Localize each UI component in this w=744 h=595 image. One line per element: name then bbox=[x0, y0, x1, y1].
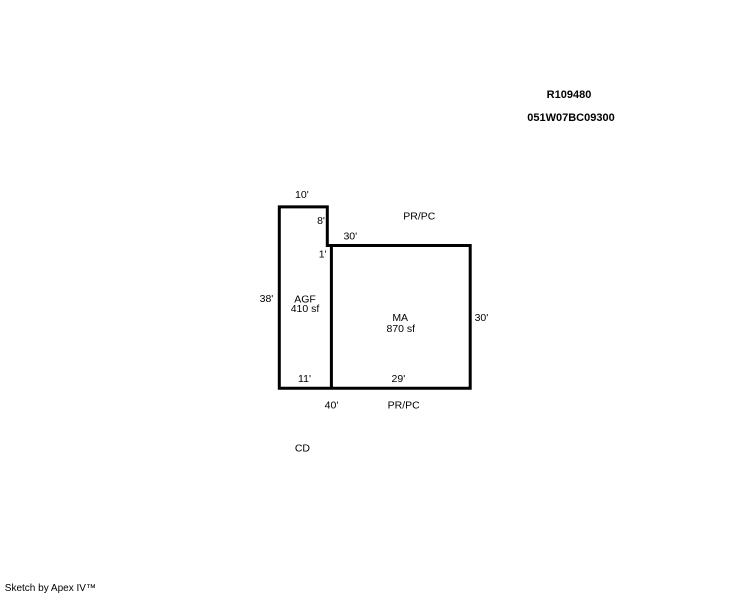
svg-text:40': 40' bbox=[325, 399, 339, 411]
svg-text:051W07BC09300: 051W07BC09300 bbox=[527, 112, 614, 124]
svg-text:30': 30' bbox=[343, 231, 357, 243]
svg-text:38': 38' bbox=[260, 293, 274, 305]
svg-text:Sketch by Apex IV™: Sketch by Apex IV™ bbox=[5, 583, 96, 594]
svg-text:11': 11' bbox=[298, 373, 311, 385]
svg-text:1': 1' bbox=[319, 249, 327, 261]
svg-text:8': 8' bbox=[317, 215, 325, 227]
svg-text:CD: CD bbox=[295, 442, 311, 454]
svg-text:R109480: R109480 bbox=[547, 89, 592, 101]
svg-text:410 sf: 410 sf bbox=[291, 303, 320, 315]
svg-text:PR/PC: PR/PC bbox=[403, 210, 436, 222]
svg-text:29': 29' bbox=[392, 373, 406, 385]
svg-text:10': 10' bbox=[295, 189, 309, 201]
svg-text:870 sf: 870 sf bbox=[386, 323, 415, 335]
svg-text:PR/PC: PR/PC bbox=[388, 399, 421, 411]
svg-text:30': 30' bbox=[475, 312, 489, 324]
